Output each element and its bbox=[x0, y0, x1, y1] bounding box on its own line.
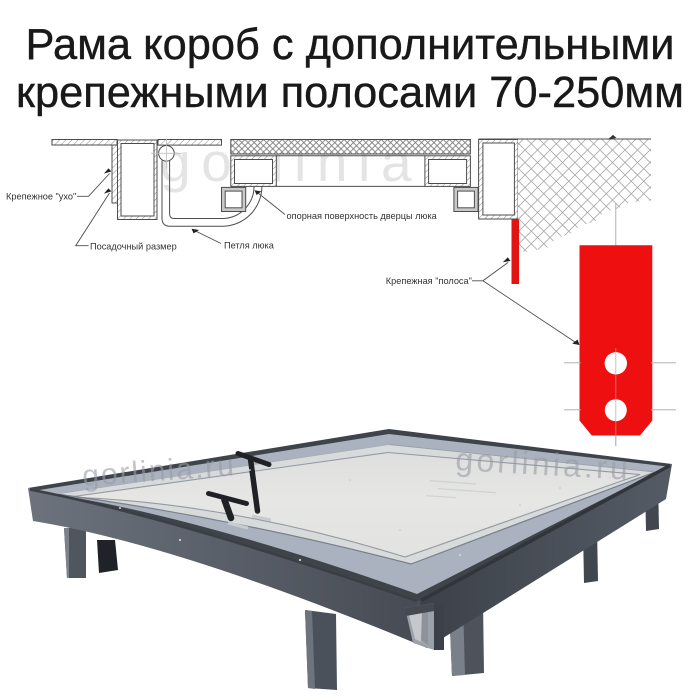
svg-text:опорная поверхность дверцы люк: опорная поверхность дверцы люка bbox=[287, 211, 438, 221]
svg-text:Крепежная "полоса": Крепежная "полоса" bbox=[386, 276, 472, 286]
svg-text:Крепежное "ухо": Крепежное "ухо" bbox=[6, 192, 76, 202]
svg-text:Петля люка: Петля люка bbox=[224, 241, 275, 251]
svg-text:Посадочный размер: Посадочный размер bbox=[90, 242, 177, 252]
